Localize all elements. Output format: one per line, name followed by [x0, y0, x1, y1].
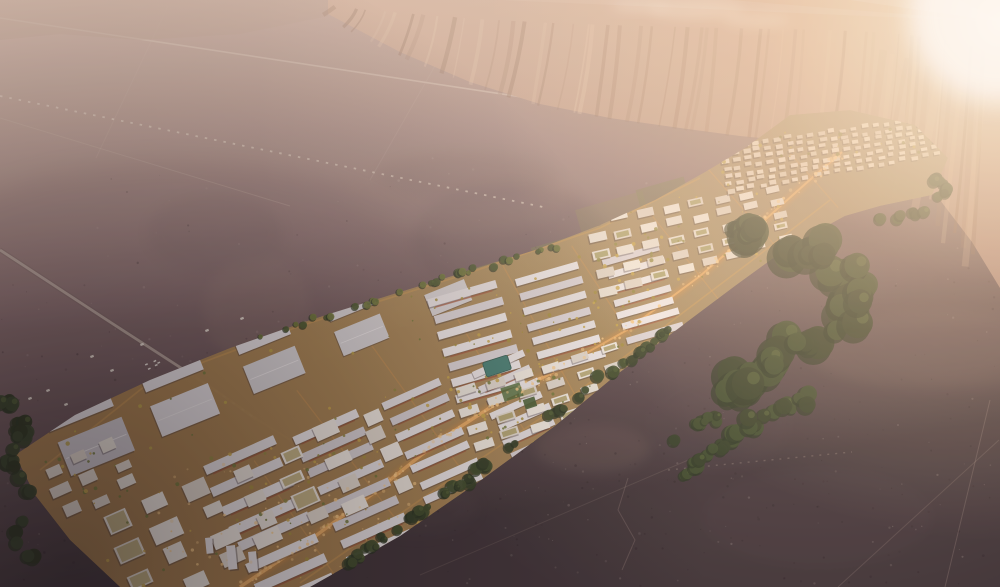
aerial-rendering-image — [0, 0, 1000, 587]
sunlight-haze — [0, 0, 1000, 587]
masterplan-scene — [0, 0, 1000, 587]
